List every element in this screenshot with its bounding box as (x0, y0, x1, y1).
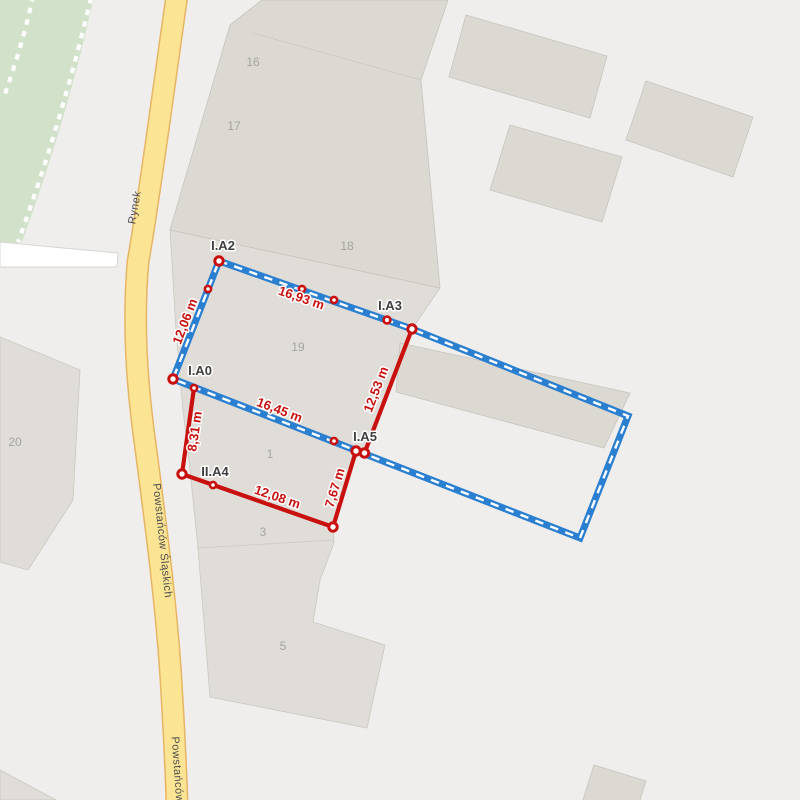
parcel-number-20: 20 (8, 435, 22, 449)
vertex-IA0[interactable] (169, 375, 177, 383)
parcel-number-18: 18 (340, 239, 354, 253)
vertex-intermediate[interactable] (191, 385, 197, 391)
parcel-number-3: 3 (260, 525, 267, 539)
vertex-corner-s[interactable] (329, 523, 337, 531)
vertex-intermediate[interactable] (331, 297, 337, 303)
point-label-IA2: I.A2 (211, 238, 235, 253)
map-viewport[interactable]: 16 17 18 19 20 1 3 5 Rynek Powstańców Śl… (0, 0, 800, 800)
point-label-IA3: I.A3 (378, 298, 402, 313)
point-label-IA0: I.A0 (188, 363, 212, 378)
parcel-number-19: 19 (291, 340, 305, 354)
vertex-IA2[interactable] (215, 257, 223, 265)
parcel-number-1: 1 (267, 447, 274, 461)
point-label-IA5: I.A5 (353, 429, 377, 444)
vertex-intermediate[interactable] (331, 438, 337, 444)
vertex-IA5-b[interactable] (360, 449, 368, 457)
vertex-intermediate[interactable] (205, 286, 211, 292)
vertex-corner-ne[interactable] (408, 325, 416, 333)
parcel-number-16: 16 (246, 55, 260, 69)
vertex-intermediate[interactable] (210, 482, 216, 488)
point-label-IIA4: II.A4 (201, 464, 229, 479)
vertex-IA3[interactable] (384, 317, 391, 324)
vertex-IIA4[interactable] (178, 470, 186, 478)
map-canvas[interactable]: 16 17 18 19 20 1 3 5 Rynek Powstańców Śl… (0, 0, 800, 800)
parcel-number-17: 17 (227, 119, 241, 133)
parcel-number-5: 5 (280, 639, 287, 653)
